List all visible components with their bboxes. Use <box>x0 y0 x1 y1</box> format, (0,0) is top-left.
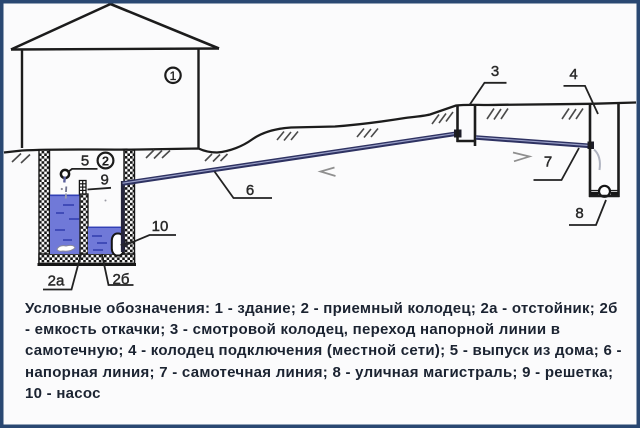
svg-text:7: 7 <box>544 154 552 171</box>
svg-text:1: 1 <box>170 69 177 83</box>
svg-text:9: 9 <box>101 172 109 189</box>
svg-text:8: 8 <box>575 205 583 222</box>
svg-text:4: 4 <box>569 66 577 83</box>
svg-text:2: 2 <box>102 153 109 168</box>
svg-text:5: 5 <box>81 153 89 170</box>
svg-text:2а: 2а <box>48 273 65 290</box>
svg-text:6: 6 <box>246 182 254 199</box>
svg-text:3: 3 <box>491 63 499 80</box>
svg-text:10: 10 <box>152 218 169 235</box>
